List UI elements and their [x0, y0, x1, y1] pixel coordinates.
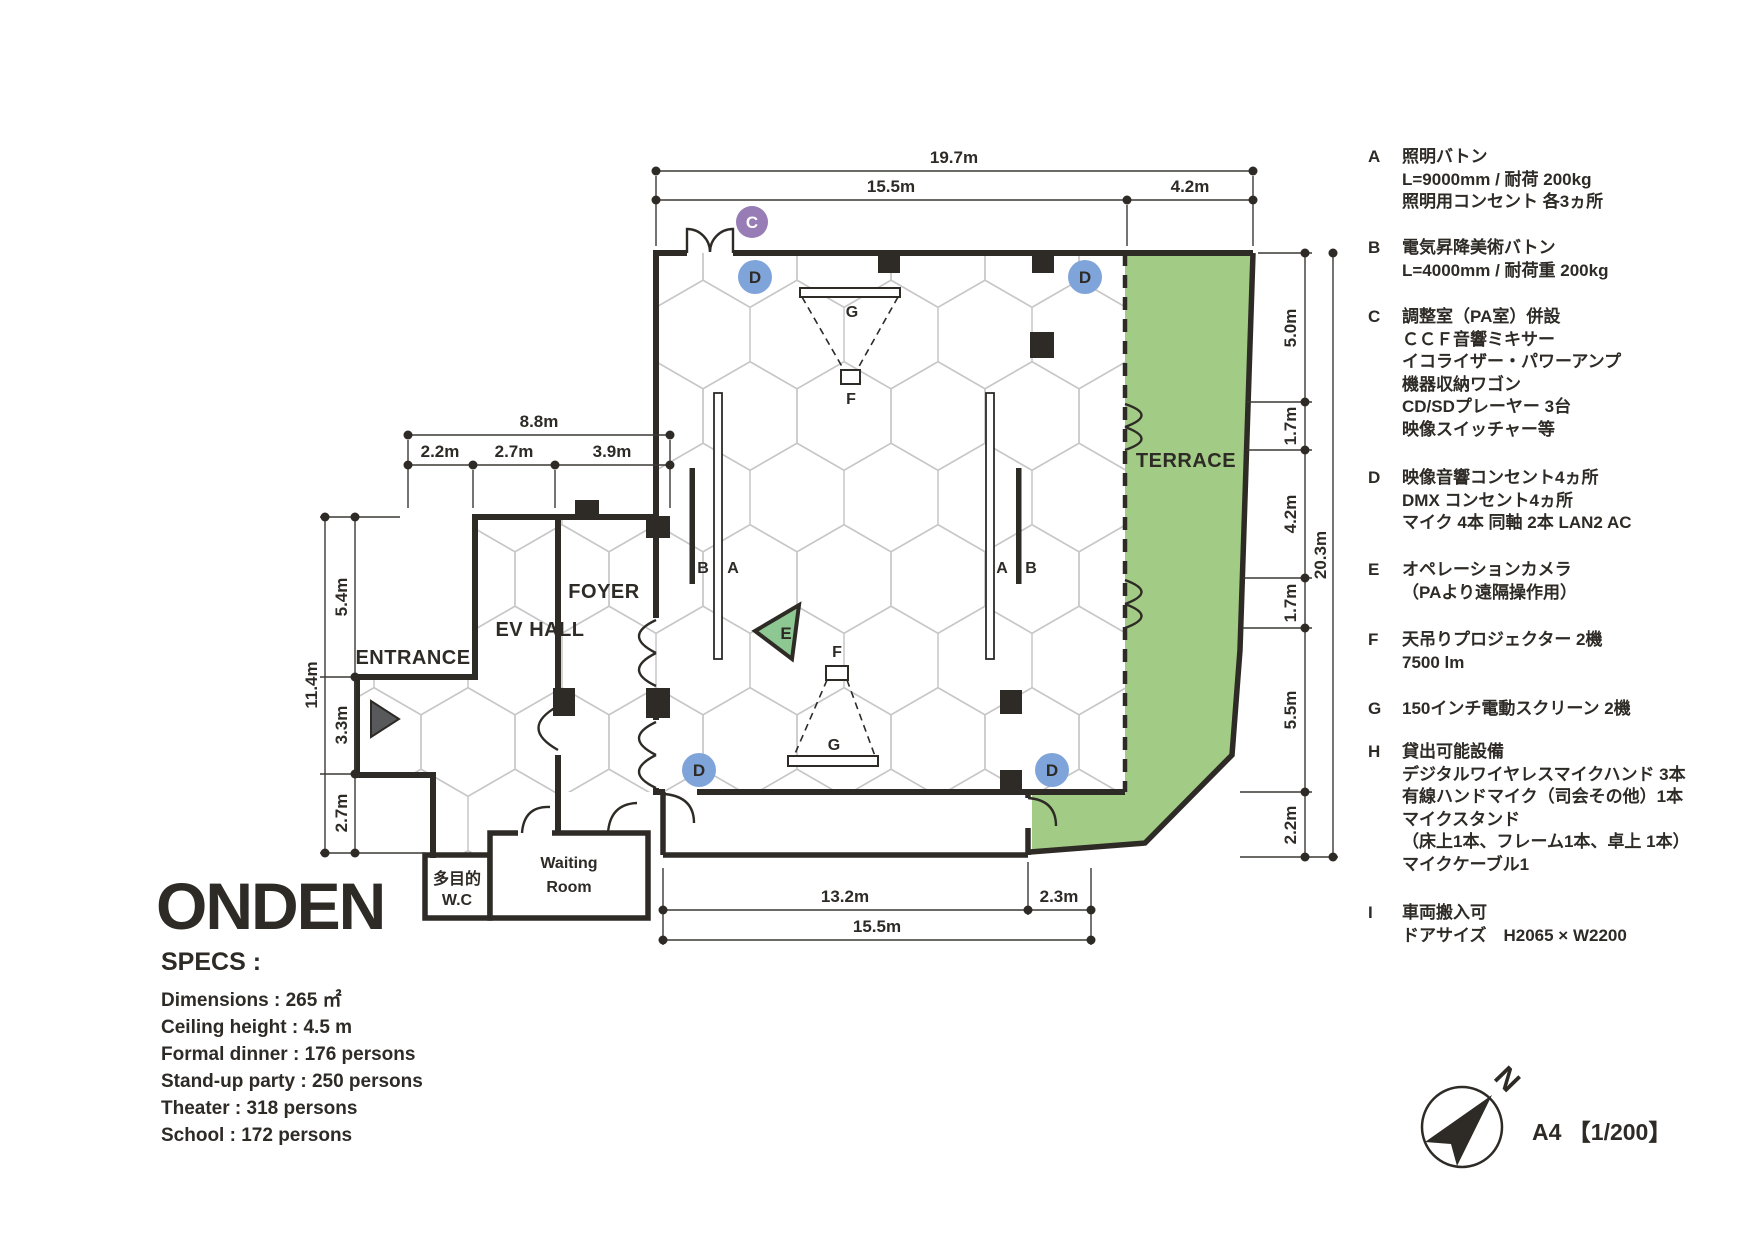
legend-line: 機器収納ワゴン — [1402, 374, 1621, 397]
dim-right-total: 20.3m — [1311, 531, 1330, 579]
legend-line: CD/SDプレーヤー 3台 — [1402, 396, 1621, 419]
legend-item-h: H 貸出可能設備デジタルワイヤレスマイクハンド 3本有線ハンドマイク（司会その他… — [1368, 741, 1690, 876]
legend-line: 電気昇降美術バトン — [1402, 237, 1608, 260]
legend-letter: C — [1368, 306, 1402, 329]
legend-line: DMX コンセント4ヵ所 — [1402, 490, 1632, 513]
wc-label-line2: W.C — [442, 892, 473, 909]
legend-item-d: D 映像音響コンセント4ヵ所DMX コンセント4ヵ所マイク 4本 同軸 2本 L… — [1368, 467, 1632, 535]
svg-text:D: D — [1046, 761, 1058, 780]
dim-top-hall: 15.5m — [867, 177, 915, 196]
spec-line: Dimensions : 265 ㎡ — [161, 987, 423, 1014]
dim-right-seg1: 5.0m — [1281, 309, 1300, 348]
spec-line: Theater : 318 persons — [161, 1095, 423, 1122]
legend-item-b: B 電気昇降美術バトンL=4000mm / 耐荷重 200kg — [1368, 237, 1608, 282]
waiting-label-line2: Room — [546, 879, 591, 896]
entrance-label: ENTRANCE — [355, 647, 470, 669]
specs-block: SPECS : Dimensions : 265 ㎡Ceiling height… — [161, 948, 423, 1149]
legend-letter: E — [1368, 559, 1402, 582]
lobby-door — [608, 803, 637, 833]
waiting-label-line1: Waiting — [540, 855, 597, 872]
legend-line: 映像音響コンセント4ヵ所 — [1402, 467, 1632, 490]
dim-right-seg6: 2.2m — [1281, 806, 1300, 845]
projector — [841, 370, 860, 384]
batten-b-label: B — [697, 560, 709, 577]
legend-item-f: F 天吊りプロジェクター 2機7500 lm — [1368, 629, 1603, 674]
legend-line: （PAより遠隔操作用） — [1402, 582, 1577, 605]
compass-north-label: N — [1487, 1060, 1526, 1099]
screen-bar — [800, 288, 900, 297]
legend-letter: H — [1368, 741, 1402, 764]
dim-upper-left-total: 8.8m — [520, 412, 559, 431]
batten-a-label: A — [727, 560, 739, 577]
legend-line: 貸出可能設備 — [1402, 741, 1690, 764]
waiting-room — [490, 833, 648, 918]
legend-line: ドアサイズ H2065 × W2200 — [1402, 925, 1627, 948]
dim-top-terrace: 4.2m — [1171, 177, 1210, 196]
legend-item-i: I 車両搬入可ドアサイズ H2065 × W2200 — [1368, 902, 1627, 947]
batten-a-line — [714, 393, 722, 659]
legend-line: イコライザー・パワーアンプ — [1402, 351, 1621, 374]
projector-label: F — [846, 391, 856, 408]
legend-line: 有線ハンドマイク（司会その他）1本 — [1402, 786, 1690, 809]
legend-line: 150インチ電動スクリーン 2機 — [1402, 698, 1631, 721]
legend-letter: B — [1368, 237, 1402, 260]
legend-line: 映像スイッチャー等 — [1402, 419, 1621, 442]
legend-line: ＣＣＦ音響ミキサー — [1402, 329, 1621, 352]
dim-left-seg1: 5.4m — [332, 578, 351, 617]
legend-line: 車両搬入可 — [1402, 902, 1627, 925]
dim-upper-left-seg3: 3.9m — [593, 442, 632, 461]
legend-line: マイク 4本 同軸 2本 LAN2 AC — [1402, 512, 1632, 535]
svg-text:D: D — [693, 761, 705, 780]
legend-line: 調整室（PA室）併設 — [1402, 306, 1621, 329]
legend-line: オペレーションカメラ — [1402, 559, 1577, 582]
svg-text:D: D — [749, 268, 761, 287]
spec-line: Stand-up party : 250 persons — [161, 1068, 423, 1095]
svg-text:C: C — [746, 213, 758, 232]
legend-line: マイクケーブル1 — [1402, 854, 1690, 877]
dim-upper-left-seg2: 2.7m — [495, 442, 534, 461]
dim-left-total: 11.4m — [302, 661, 321, 708]
dim-left-seg3: 2.7m — [332, 794, 351, 833]
spec-line: Formal dinner : 176 persons — [161, 1041, 423, 1068]
dim-right-seg2: 1.7m — [1281, 407, 1300, 446]
batten-a-line — [986, 393, 994, 659]
legend-letter: G — [1368, 698, 1402, 721]
dim-bottom-total: 15.5m — [853, 917, 901, 936]
legend-line: デジタルワイヤレスマイクハンド 3本 — [1402, 764, 1690, 787]
legend-letter: A — [1368, 146, 1402, 169]
spec-line: School : 172 persons — [161, 1122, 423, 1149]
hall-top-double-door — [687, 229, 733, 253]
dim-bottom-seg2: 2.3m — [1040, 887, 1079, 906]
back-corridor — [663, 792, 1028, 855]
projector-label: F — [832, 644, 842, 661]
spec-line: Ceiling height : 4.5 m — [161, 1014, 423, 1041]
legend-letter: I — [1368, 902, 1402, 925]
camera-label: E — [780, 624, 791, 643]
batten-b-label: B — [1025, 560, 1037, 577]
scale-label: A4 【1/200】 — [1532, 1119, 1671, 1145]
svg-text:D: D — [1079, 268, 1091, 287]
legend-line: マイクスタンド — [1402, 809, 1690, 832]
screen-label: G — [828, 737, 840, 754]
legend-line: 7500 lm — [1402, 652, 1603, 675]
screen-bar — [788, 756, 878, 766]
floorplan-page: B A A B G F F G E C D D — [0, 0, 1754, 1241]
foyer-label: FOYER — [568, 581, 639, 603]
batten-a-label: A — [996, 560, 1008, 577]
marker-d-top-right: D — [1068, 260, 1102, 294]
dim-left-seg2: 3.3m — [332, 706, 351, 745]
marker-d-bottom-left: D — [682, 753, 716, 787]
legend-letter: F — [1368, 629, 1402, 652]
legend-item-c: C 調整室（PA室）併設ＣＣＦ音響ミキサーイコライザー・パワーアンプ機器収納ワゴ… — [1368, 306, 1621, 441]
dim-top-total: 19.7m — [930, 148, 978, 167]
wc-label-line1: 多目的 — [433, 869, 481, 888]
ev-hall-label: EV HALL — [495, 619, 584, 641]
dim-bottom-seg1: 13.2m — [821, 887, 869, 906]
projector — [826, 666, 848, 680]
marker-d-top-left: D — [738, 260, 772, 294]
legend-line: 照明バトン — [1402, 146, 1603, 169]
legend-line: L=4000mm / 耐荷重 200kg — [1402, 260, 1608, 283]
dim-right-seg5: 5.5m — [1281, 691, 1300, 730]
legend-line: 照明用コンセント 各3ヵ所 — [1402, 191, 1603, 214]
batten-b-line — [1016, 468, 1022, 584]
specs-lines: Dimensions : 265 ㎡Ceiling height : 4.5 m… — [161, 987, 423, 1149]
compass: N A4 【1/200】 — [1422, 1060, 1671, 1167]
marker-d-bottom-right: D — [1035, 753, 1069, 787]
batten-b-line — [690, 468, 696, 584]
page-title: ONDEN — [156, 868, 384, 944]
dim-right-seg4: 1.7m — [1281, 584, 1300, 623]
terrace-label: TERRACE — [1136, 450, 1236, 472]
legend-item-a: A 照明バトンL=9000mm / 耐荷 200kg照明用コンセント 各3ヵ所 — [1368, 146, 1603, 214]
marker-c: C — [736, 206, 768, 238]
legend-line: 天吊りプロジェクター 2機 — [1402, 629, 1603, 652]
specs-heading: SPECS : — [161, 948, 423, 977]
dim-right-seg3: 4.2m — [1281, 495, 1300, 534]
legend-line: L=9000mm / 耐荷 200kg — [1402, 169, 1603, 192]
legend-item-g: G 150インチ電動スクリーン 2機 — [1368, 698, 1631, 721]
legend-item-e: E オペレーションカメラ（PAより遠隔操作用） — [1368, 559, 1577, 604]
legend-letter: D — [1368, 467, 1402, 490]
dim-upper-left-seg1: 2.2m — [421, 442, 460, 461]
screen-label: G — [846, 304, 858, 321]
legend-line: （床上1本、フレーム1本、卓上 1本） — [1402, 831, 1690, 854]
